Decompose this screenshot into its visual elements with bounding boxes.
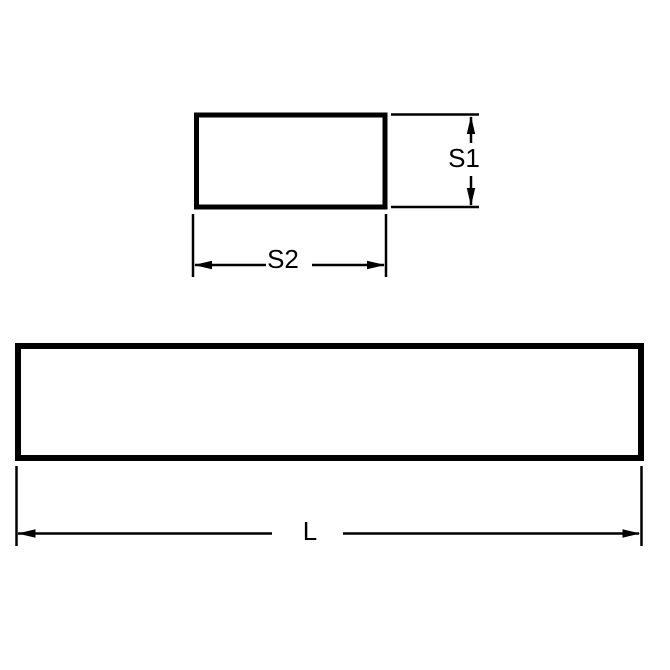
s2-arrow-left-icon [194, 261, 212, 269]
s2-dimension: S2 [193, 214, 386, 277]
l-arrow-right-icon [623, 529, 641, 537]
s2-arrow-right-icon [367, 261, 385, 269]
s1-arrow-down-icon [467, 188, 475, 206]
s1-arrow-up-icon [467, 116, 475, 134]
diagram-canvas: S1 S2 L [0, 0, 670, 670]
length-rectangle [18, 346, 641, 458]
length-view: L [17, 346, 642, 546]
keystock-dimension-diagram: S1 S2 L [0, 0, 670, 670]
l-arrow-left-icon [18, 529, 36, 537]
l-dimension-label: L [303, 516, 317, 546]
l-dimension: L [17, 466, 642, 546]
s1-dimension-label: S1 [448, 143, 480, 173]
s2-dimension-label: S2 [267, 244, 299, 274]
s1-dimension: S1 [391, 115, 480, 208]
cross-section-view: S1 S2 [193, 115, 480, 278]
cross-section-rectangle [197, 115, 386, 207]
